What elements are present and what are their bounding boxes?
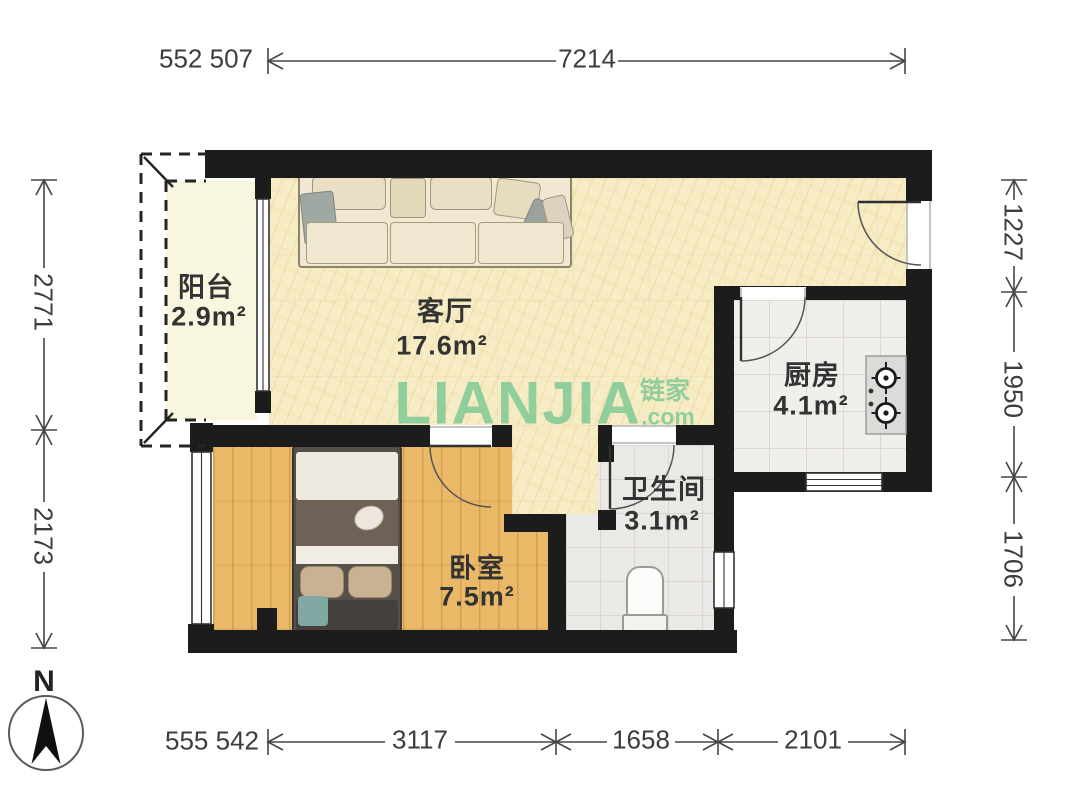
dim-bottom-prefix: 555 542 [165, 726, 259, 757]
dim-top: 7214 [558, 44, 616, 75]
bathroom-label: 卫生间 [622, 468, 706, 507]
bathroom-area: 3.1m² [624, 506, 700, 537]
dim-right-lower: 1706 [998, 530, 1029, 588]
balcony-label: 阳台 [178, 266, 234, 305]
bedroom-area: 7.5m² [439, 582, 515, 613]
dim-bottom-middle: 1658 [612, 725, 670, 756]
dim-top-prefix: 552 507 [159, 44, 253, 75]
dim-bottom-left: 3117 [392, 725, 448, 756]
lianjia-logo: LIANJIA [394, 369, 641, 438]
dim-right-middle: 1950 [998, 360, 1029, 418]
dim-right-upper: 1227 [998, 203, 1029, 261]
kitchen-area: 4.1m² [773, 391, 849, 422]
dim-left-lower: 2173 [28, 507, 59, 565]
living-label: 客厅 [417, 290, 473, 329]
compass-icon [9, 696, 83, 770]
balcony-area: 2.9m² [171, 302, 247, 333]
window-balcony-living [257, 199, 269, 391]
window-bedroom-left [192, 452, 211, 624]
bedroom-door [430, 446, 491, 507]
kitchen-door [741, 297, 805, 361]
window-bathroom [714, 552, 734, 608]
window-kitchen [806, 473, 882, 491]
balcony-corner-ticks [144, 157, 173, 443]
bedroom-label: 卧室 [449, 547, 505, 586]
kitchen-label: 厨房 [784, 354, 840, 393]
dim-left-upper: 2771 [28, 273, 59, 331]
dim-bottom-right: 2101 [784, 725, 842, 756]
lianjia-logo-tld: .com [641, 404, 695, 431]
living-area: 17.6m² [396, 331, 488, 362]
lianjia-logo-cn: 链家 [640, 371, 690, 407]
stove-icon [866, 356, 906, 434]
floorplan-canvas: LIANJIA 链家 .com 阳台 2.9m² 客厅 17.6m² 厨房 4.… [0, 0, 1080, 810]
compass-north-label: N [33, 665, 55, 699]
